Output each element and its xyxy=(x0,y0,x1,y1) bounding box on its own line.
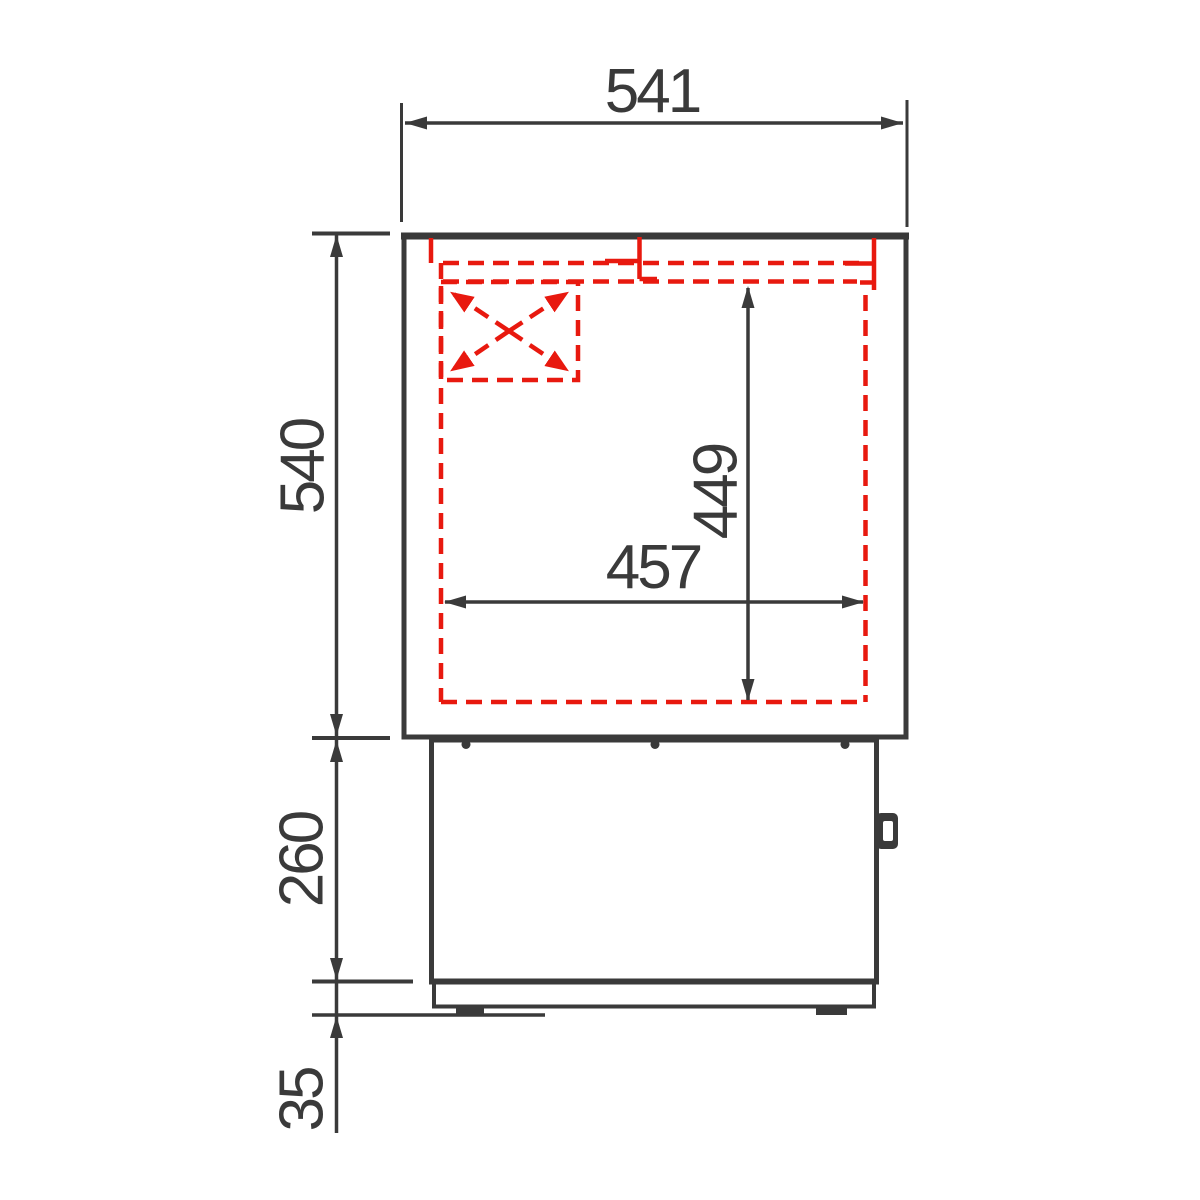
fan-airflow-arrow xyxy=(452,331,509,370)
drawing-canvas: 541 540 260 35 449 457 xyxy=(0,0,1200,1200)
fan-airflow-arrow xyxy=(509,293,567,331)
arrowhead xyxy=(330,740,343,762)
base-unit-outline xyxy=(432,740,877,982)
arrowhead xyxy=(330,958,343,980)
arrowhead xyxy=(742,286,755,308)
foot-right xyxy=(816,1006,847,1015)
dim-label-inner-height: 449 xyxy=(682,444,751,539)
dim-label-inner-width: 457 xyxy=(606,533,701,602)
latch-bracket-slot xyxy=(883,821,893,841)
arrowhead xyxy=(330,1016,343,1038)
fan-airflow-arrow xyxy=(452,293,509,331)
arrowhead xyxy=(405,117,427,130)
arrowhead xyxy=(330,235,343,257)
plinth-outline xyxy=(434,983,874,1007)
arrowhead xyxy=(444,596,466,609)
arrowhead xyxy=(742,679,755,701)
fan-airflow-arrow xyxy=(509,331,567,370)
dim-label-plinth-height: 35 xyxy=(268,1068,337,1131)
technical-drawing-page: 541 540 260 35 449 457 xyxy=(0,0,1200,1200)
arrowhead xyxy=(330,714,343,736)
arrowhead xyxy=(881,117,903,130)
dim-label-base-height: 260 xyxy=(268,811,337,907)
dim-label-body-height: 540 xyxy=(269,418,338,514)
lid-profile-highlight-middle-step xyxy=(605,237,657,279)
dim-label-overall-width: 541 xyxy=(605,57,700,126)
arrowhead xyxy=(842,596,864,609)
